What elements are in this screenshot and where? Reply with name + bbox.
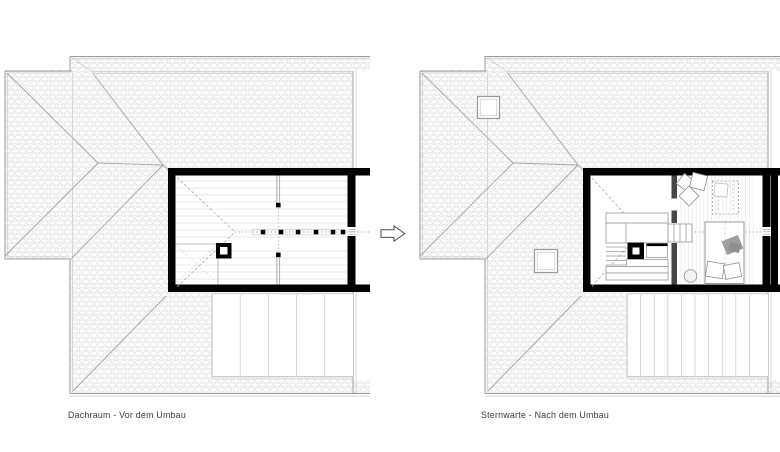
right-plan-label: Sternwarte - Nach dem Umbau — [481, 410, 609, 420]
chimney — [216, 243, 232, 259]
floor-plan-drawing — [0, 0, 780, 452]
roof-skylight-left — [535, 250, 558, 273]
bed — [705, 222, 744, 284]
roof-skylight-top — [478, 97, 500, 119]
left-plan-label: Dachraum - Vor dem Umbau — [68, 410, 186, 420]
chimney — [628, 243, 668, 260]
loggia-outer-wall — [771, 168, 778, 292]
architectural-drawing-canvas: Dachraum - Vor dem Umbau Sternwarte - Na… — [0, 0, 780, 452]
transform-arrow-icon — [381, 226, 405, 241]
side-stool — [684, 270, 697, 283]
left-plan-before — [5, 57, 372, 397]
right-plan-after — [420, 57, 780, 397]
